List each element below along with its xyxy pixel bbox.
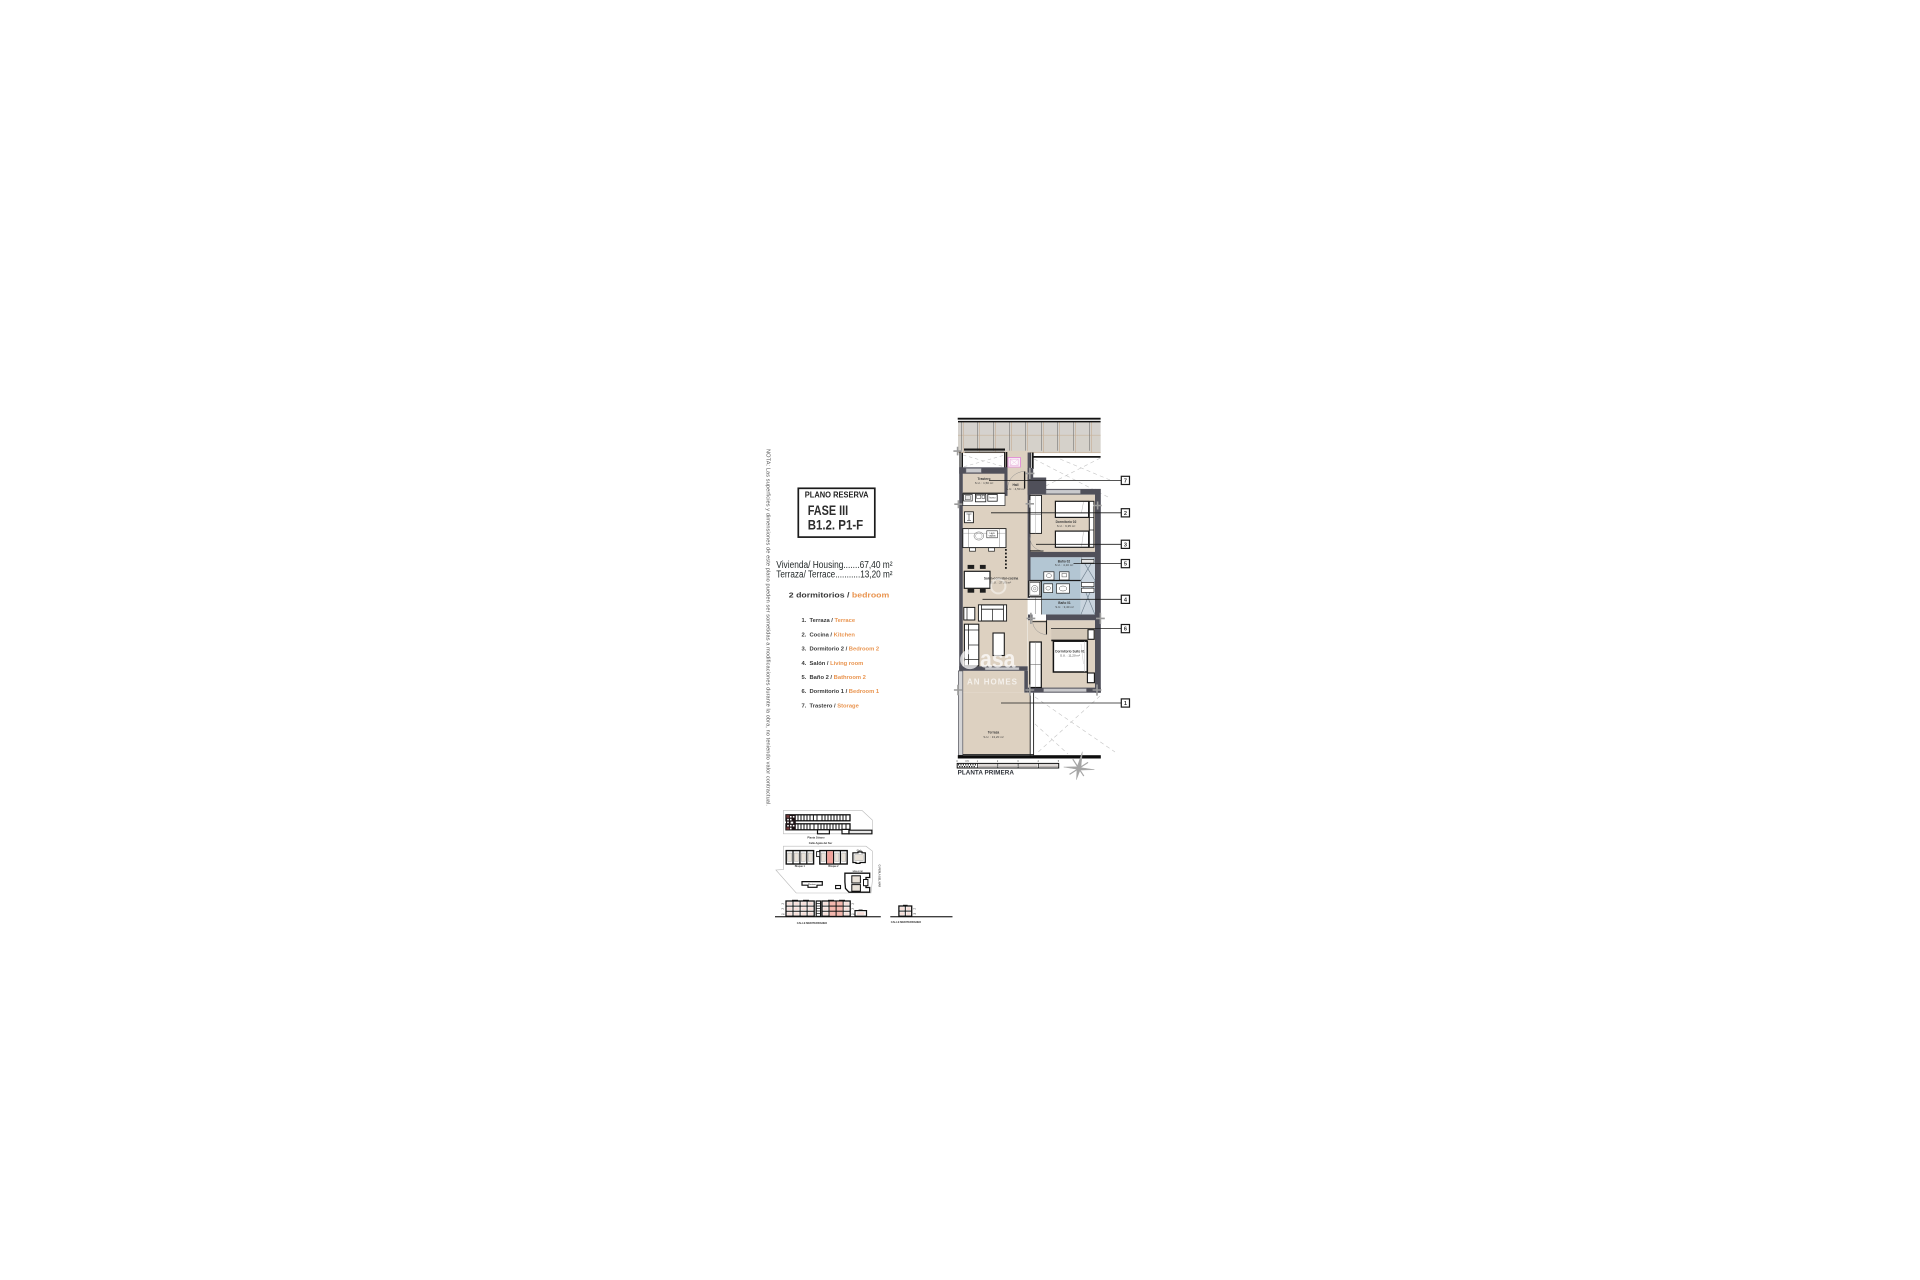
svg-text:Calle Agata del Sur: Calle Agata del Sur	[809, 841, 833, 845]
svg-text:3: 3	[1124, 542, 1127, 548]
svg-text:S.U. : 4,10 m²: S.U. : 4,10 m²	[1055, 563, 1074, 567]
svg-text:AN HOMES: AN HOMES	[967, 677, 1018, 686]
svg-text:S.U. : 11,20 m²: S.U. : 11,20 m²	[1060, 654, 1080, 658]
svg-text:S.U. : 13,20 m²: S.U. : 13,20 m²	[983, 735, 1003, 739]
svg-text:Bloque 1: Bloque 1	[795, 865, 806, 868]
svg-text:5: 5	[1124, 562, 1127, 568]
svg-text:CALLE MEDITERRANEO: CALLE MEDITERRANEO	[797, 921, 827, 925]
svg-text:NOTA: Las superficies y dimens: NOTA: Las superficies y dimensiones de e…	[765, 449, 771, 806]
svg-text:Terraza/ Terrace...........13,: Terraza/ Terrace...........13,20 m²	[776, 569, 893, 580]
svg-text:Lava: Lava	[990, 533, 996, 535]
svg-text:Trastero / Storage: Trastero / Storage	[810, 703, 860, 709]
svg-text:Cocina / Kitchen: Cocina / Kitchen	[810, 632, 856, 638]
svg-text:horno: horno	[989, 497, 996, 500]
svg-text:FASE III: FASE III	[808, 503, 849, 518]
svg-text:vajillas: vajillas	[989, 536, 997, 538]
svg-text:asa: asa	[980, 645, 1016, 673]
svg-text:Club: Club	[857, 850, 863, 852]
svg-text:4.: 4.	[802, 661, 807, 667]
svg-text:Dormitorio 2 / Bedroom 2: Dormitorio 2 / Bedroom 2	[810, 647, 880, 653]
svg-text:S.U. : 1,50 m²: S.U. : 1,50 m²	[975, 481, 994, 485]
svg-text:7.: 7.	[802, 703, 807, 709]
svg-text:5.: 5.	[802, 675, 807, 681]
svg-text:S.U. : 3,40 m²: S.U. : 3,40 m²	[1055, 605, 1074, 609]
svg-text:Baño 2 / Bathroom 2: Baño 2 / Bathroom 2	[810, 675, 866, 681]
svg-text:SPA-GYM: SPA-GYM	[852, 870, 862, 873]
svg-text:2.: 2.	[802, 632, 807, 638]
svg-text:PLANO RESERVA: PLANO RESERVA	[805, 489, 869, 499]
svg-text:CALLE MEDITERRANEO: CALLE MEDITERRANEO	[891, 920, 921, 924]
svg-text:Planta Sótano: Planta Sótano	[807, 836, 825, 840]
svg-text:C/ PERLA DEL MAR: C/ PERLA DEL MAR	[878, 865, 881, 888]
svg-text:S.U. : 9,35 m²: S.U. : 9,35 m²	[1057, 524, 1076, 528]
svg-text:2: 2	[1124, 511, 1127, 517]
svg-text:Piscina: Piscina	[808, 884, 816, 886]
svg-text:2 dormitorios / bedroom: 2 dormitorios / bedroom	[789, 590, 890, 599]
svg-text:S.U. : 4,50 m²: S.U. : 4,50 m²	[1006, 487, 1025, 491]
svg-text:PLANTA PRIMERA: PLANTA PRIMERA	[958, 769, 1015, 776]
svg-text:Salón / Living room: Salón / Living room	[810, 661, 864, 667]
svg-text:Bloque 2: Bloque 2	[828, 865, 839, 868]
svg-text:6: 6	[1124, 627, 1127, 633]
svg-text:Dormitorio 1 / Bedroom 1: Dormitorio 1 / Bedroom 1	[810, 689, 880, 695]
svg-text:6.: 6.	[802, 689, 807, 695]
svg-text:1: 1	[1124, 701, 1127, 707]
svg-text:Terraza / Terrace: Terraza / Terrace	[810, 618, 856, 624]
svg-text:7: 7	[1124, 479, 1127, 485]
svg-text:3.: 3.	[802, 647, 807, 653]
svg-text:B1.2. P1-F: B1.2. P1-F	[808, 518, 864, 533]
svg-text:1.: 1.	[802, 618, 807, 624]
